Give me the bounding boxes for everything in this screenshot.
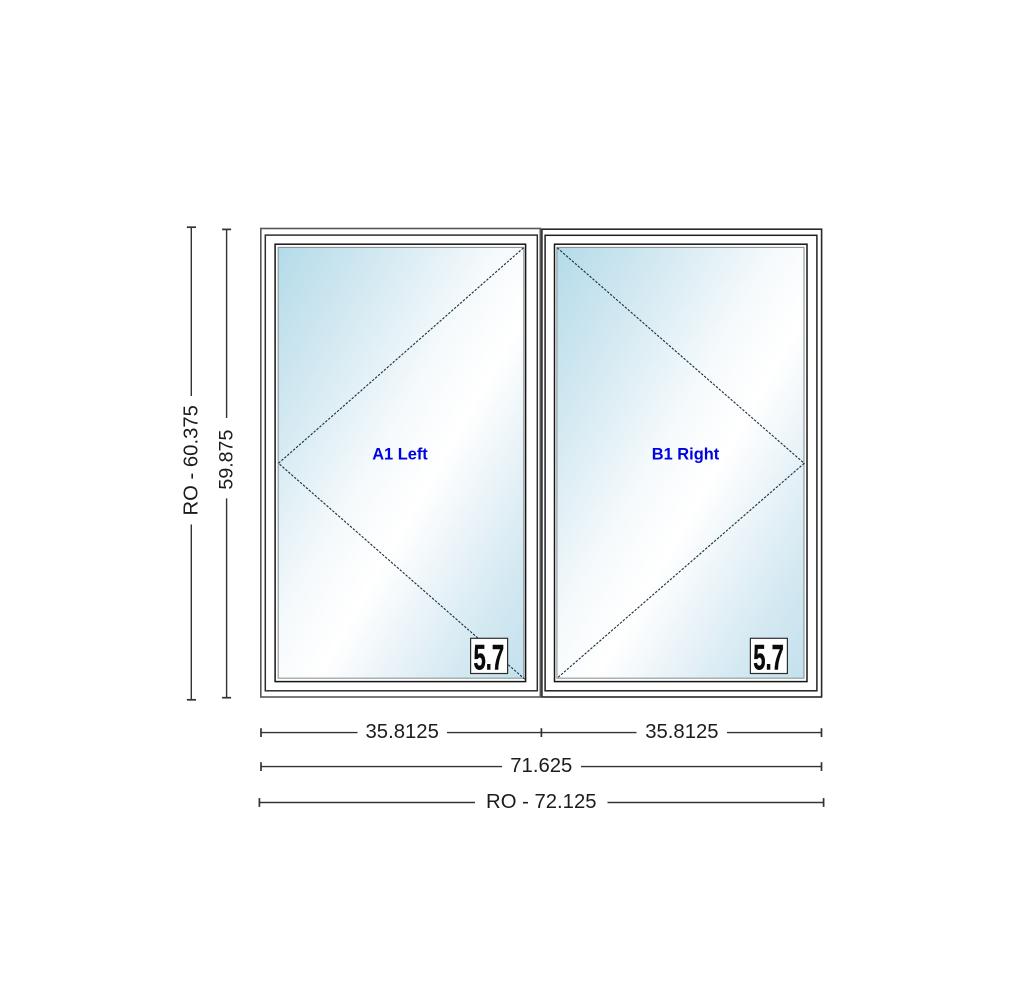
svg-text:59.875: 59.875 xyxy=(216,430,238,490)
svg-text:71.625: 71.625 xyxy=(510,755,572,777)
svg-text:35.8125: 35.8125 xyxy=(366,721,439,743)
svg-text:A1 Left: A1 Left xyxy=(372,445,428,463)
svg-text:5.7: 5.7 xyxy=(753,639,784,677)
svg-text:B1 Right: B1 Right xyxy=(652,445,720,463)
svg-text:35.8125: 35.8125 xyxy=(645,721,718,743)
svg-text:5.7: 5.7 xyxy=(473,639,504,677)
svg-text:RO - 72.125: RO - 72.125 xyxy=(486,791,596,813)
svg-text:RO - 60.375: RO - 60.375 xyxy=(181,405,203,515)
